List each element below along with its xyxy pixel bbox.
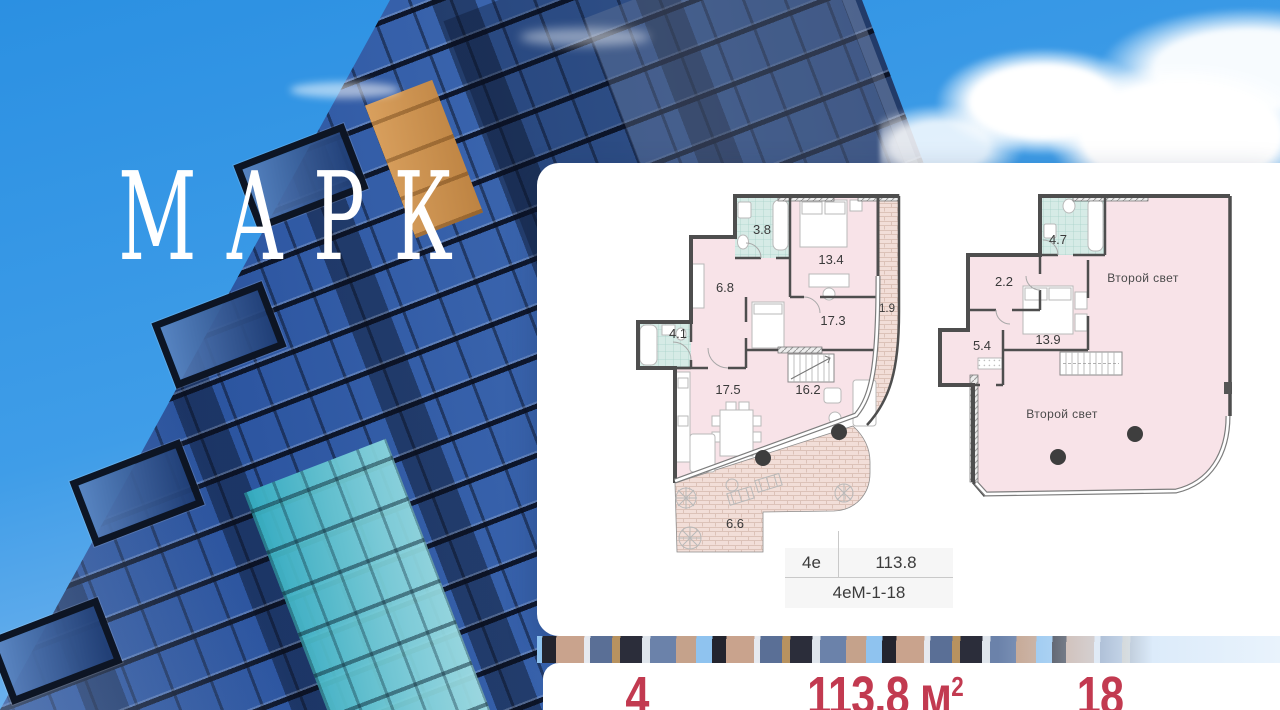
room-label-balcony: 1.9 — [879, 303, 895, 315]
column — [1127, 426, 1143, 442]
room-label-closet: 2.2 — [995, 274, 1013, 289]
second-light-label-lower: Второй свет — [1026, 407, 1098, 421]
room-label-bedroom-mid: 17.3 — [820, 313, 845, 328]
brand-logo: МАРК — [118, 156, 482, 278]
plan-type-cell: 4е — [785, 548, 839, 577]
floor-plan-level-1: 3.8 13.4 6.8 1.9 17.3 4.1 17.5 16.2 6.6 — [628, 194, 902, 560]
facade-strip-sky-fade — [998, 636, 1280, 663]
floorplan-card: 3.8 13.4 6.8 1.9 17.3 4.1 17.5 16.2 6.6 — [537, 163, 1280, 636]
column — [1050, 449, 1066, 465]
stat-rooms-value: 4 — [625, 669, 648, 710]
stat-rooms: 4 — [622, 669, 651, 710]
table-row-top: 4е 113.8 — [785, 548, 953, 577]
doormat — [978, 358, 1002, 369]
room-label-bath-small: 3.8 — [753, 222, 771, 237]
room-label-bathroom: 4.7 — [1049, 232, 1067, 247]
stat-floor: 18 — [1071, 669, 1129, 710]
plan-code-cell: 4еМ-1-18 — [785, 577, 953, 608]
second-light-label-upper: Второй свет — [1107, 271, 1179, 285]
table-divider-tick — [838, 531, 839, 548]
stat-area: 113.8 м2 — [788, 669, 983, 710]
apartment-type-table: 4е 113.8 4еМ-1-18 — [785, 548, 953, 608]
wall-notch — [1224, 382, 1232, 394]
floor-plan-level-2: 4.7 2.2 13.9 5.4 Второй свет Второй свет — [938, 194, 1232, 500]
cloud — [880, 6, 1280, 171]
stat-floor-value: 18 — [1077, 669, 1123, 710]
staircase-level-1 — [788, 354, 834, 382]
plan-area-cell: 113.8 — [839, 548, 953, 577]
cloud-wisp — [290, 82, 400, 98]
page: МАРК — [0, 0, 1280, 710]
room-label-hallway: 5.4 — [973, 338, 991, 353]
stat-area-value: 113.8 м2 — [807, 669, 963, 710]
room-label-bedroom: 13.9 — [1035, 332, 1060, 347]
column — [831, 424, 847, 440]
stat-area-superscript: 2 — [951, 671, 963, 702]
stats-band: 4 113.8 м2 18 — [543, 663, 1280, 710]
staircase-level-2 — [1060, 352, 1122, 375]
cloud-wisp — [520, 28, 650, 46]
room-label-hallway: 6.8 — [716, 280, 734, 295]
room-label-bathroom: 4.1 — [669, 326, 687, 341]
hatched-wall — [778, 347, 822, 353]
room-label-living: 16.2 — [795, 382, 820, 397]
room-label-bedroom-top: 13.4 — [818, 252, 843, 267]
column — [755, 450, 771, 466]
room-label-kitchen-living: 17.5 — [715, 382, 740, 397]
room-label-terrace: 6.6 — [726, 516, 744, 531]
facade-photo-strip — [537, 636, 1280, 663]
